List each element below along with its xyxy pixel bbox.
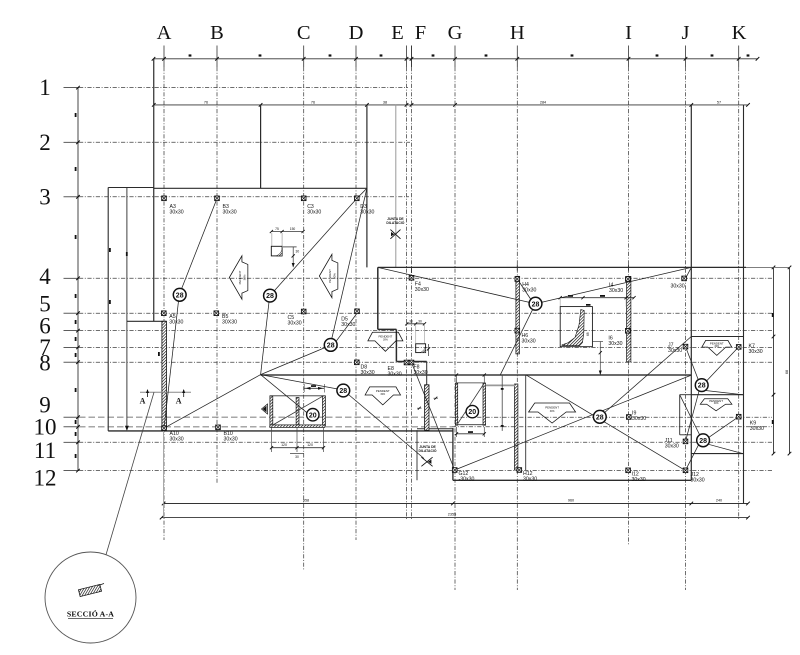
svg-text:76: 76 <box>204 100 208 104</box>
svg-text:10: 10 <box>34 415 57 440</box>
svg-text:28: 28 <box>266 293 274 300</box>
svg-text:30: 30 <box>296 250 300 254</box>
svg-text:30x30: 30x30 <box>288 321 302 327</box>
svg-text:28: 28 <box>339 388 347 395</box>
svg-text:75: 75 <box>275 227 279 231</box>
svg-text:284: 284 <box>540 100 546 104</box>
svg-text:68: 68 <box>785 370 789 374</box>
svg-text:30: 30 <box>409 319 413 323</box>
svg-text:30x30: 30x30 <box>632 477 646 483</box>
svg-text:120: 120 <box>281 443 287 447</box>
svg-text:3: 3 <box>39 184 51 209</box>
svg-text:20: 20 <box>309 412 317 419</box>
svg-text:960: 960 <box>568 499 574 503</box>
svg-text:30x30: 30x30 <box>415 287 429 293</box>
svg-text:G: G <box>448 22 463 44</box>
svg-text:28: 28 <box>327 343 335 350</box>
svg-text:28: 28 <box>596 414 604 421</box>
svg-text:30x30: 30x30 <box>749 349 763 355</box>
svg-text:30%: 30% <box>383 339 389 342</box>
svg-text:K: K <box>732 22 747 44</box>
svg-text:30x30: 30x30 <box>170 437 184 443</box>
svg-text:30x30: 30x30 <box>691 478 705 484</box>
svg-text:1: 1 <box>39 75 51 100</box>
svg-text:30x30: 30x30 <box>668 348 682 354</box>
svg-text:A: A <box>140 397 146 406</box>
svg-text:A: A <box>176 397 182 406</box>
svg-text:DILATACIÓ: DILATACIÓ <box>419 448 437 453</box>
svg-text:30%: 30% <box>333 273 337 279</box>
svg-text:2: 2 <box>39 130 51 155</box>
svg-text:E: E <box>391 22 404 44</box>
svg-text:30x30: 30x30 <box>414 370 428 376</box>
svg-text:30x30: 30x30 <box>665 444 679 450</box>
svg-text:30x30: 30x30 <box>169 319 183 325</box>
svg-text:2355: 2355 <box>448 513 456 517</box>
svg-text:4: 4 <box>39 264 51 289</box>
svg-text:150: 150 <box>290 227 296 231</box>
svg-text:30x30: 30x30 <box>307 210 321 216</box>
svg-text:30: 30 <box>295 455 299 459</box>
svg-text:20: 20 <box>468 409 476 416</box>
svg-text:H: H <box>510 22 525 44</box>
svg-text:240: 240 <box>716 499 722 503</box>
svg-text:C: C <box>297 22 311 44</box>
svg-text:958: 958 <box>303 499 309 503</box>
svg-text:30%: 30% <box>243 274 247 280</box>
svg-text:PENDENT: PENDENT <box>328 269 332 283</box>
svg-text:30x30: 30x30 <box>750 426 764 432</box>
svg-text:30x30: 30x30 <box>361 370 375 376</box>
svg-text:J: J <box>682 22 690 44</box>
svg-text:DILATACIÓ: DILATACIÓ <box>386 220 404 225</box>
svg-text:30: 30 <box>418 319 422 323</box>
svg-text:30X30: 30X30 <box>222 319 237 325</box>
svg-text:38: 38 <box>383 100 387 104</box>
svg-text:A: A <box>157 22 172 44</box>
svg-text:28: 28 <box>176 292 184 299</box>
svg-text:68: 68 <box>586 332 590 336</box>
svg-text:B: B <box>210 22 224 44</box>
svg-text:30x30: 30x30 <box>632 416 646 422</box>
svg-text:30x30: 30x30 <box>224 437 238 443</box>
svg-text:F: F <box>415 22 426 44</box>
svg-text:30x30: 30x30 <box>388 372 402 378</box>
svg-text:I: I <box>625 22 632 44</box>
svg-text:12: 12 <box>34 466 57 491</box>
svg-text:30x30: 30x30 <box>609 288 623 294</box>
svg-text:30x30: 30x30 <box>523 477 537 483</box>
svg-text:30x30: 30x30 <box>360 210 374 216</box>
svg-text:30x30: 30x30 <box>170 210 184 216</box>
svg-text:30x30: 30x30 <box>522 339 536 345</box>
svg-text:11: 11 <box>34 438 56 463</box>
svg-text:D: D <box>349 22 364 44</box>
svg-text:28: 28 <box>532 301 540 308</box>
svg-text:30x30: 30x30 <box>223 210 237 216</box>
svg-text:28: 28 <box>698 383 706 390</box>
svg-text:SECCIÓ A-A: SECCIÓ A-A <box>67 608 114 618</box>
svg-text:PENDENT: PENDENT <box>238 270 242 284</box>
svg-text:120: 120 <box>307 443 313 447</box>
svg-text:76: 76 <box>311 100 315 104</box>
svg-text:30x30: 30x30 <box>522 288 536 294</box>
svg-text:30x30: 30x30 <box>671 284 685 290</box>
svg-text:28: 28 <box>699 438 707 445</box>
svg-text:8: 8 <box>39 351 51 376</box>
svg-text:30x30: 30x30 <box>341 322 355 328</box>
svg-text:57: 57 <box>717 100 721 104</box>
svg-text:-30x30: -30x30 <box>459 477 475 483</box>
svg-text:30x30: 30x30 <box>608 341 622 347</box>
